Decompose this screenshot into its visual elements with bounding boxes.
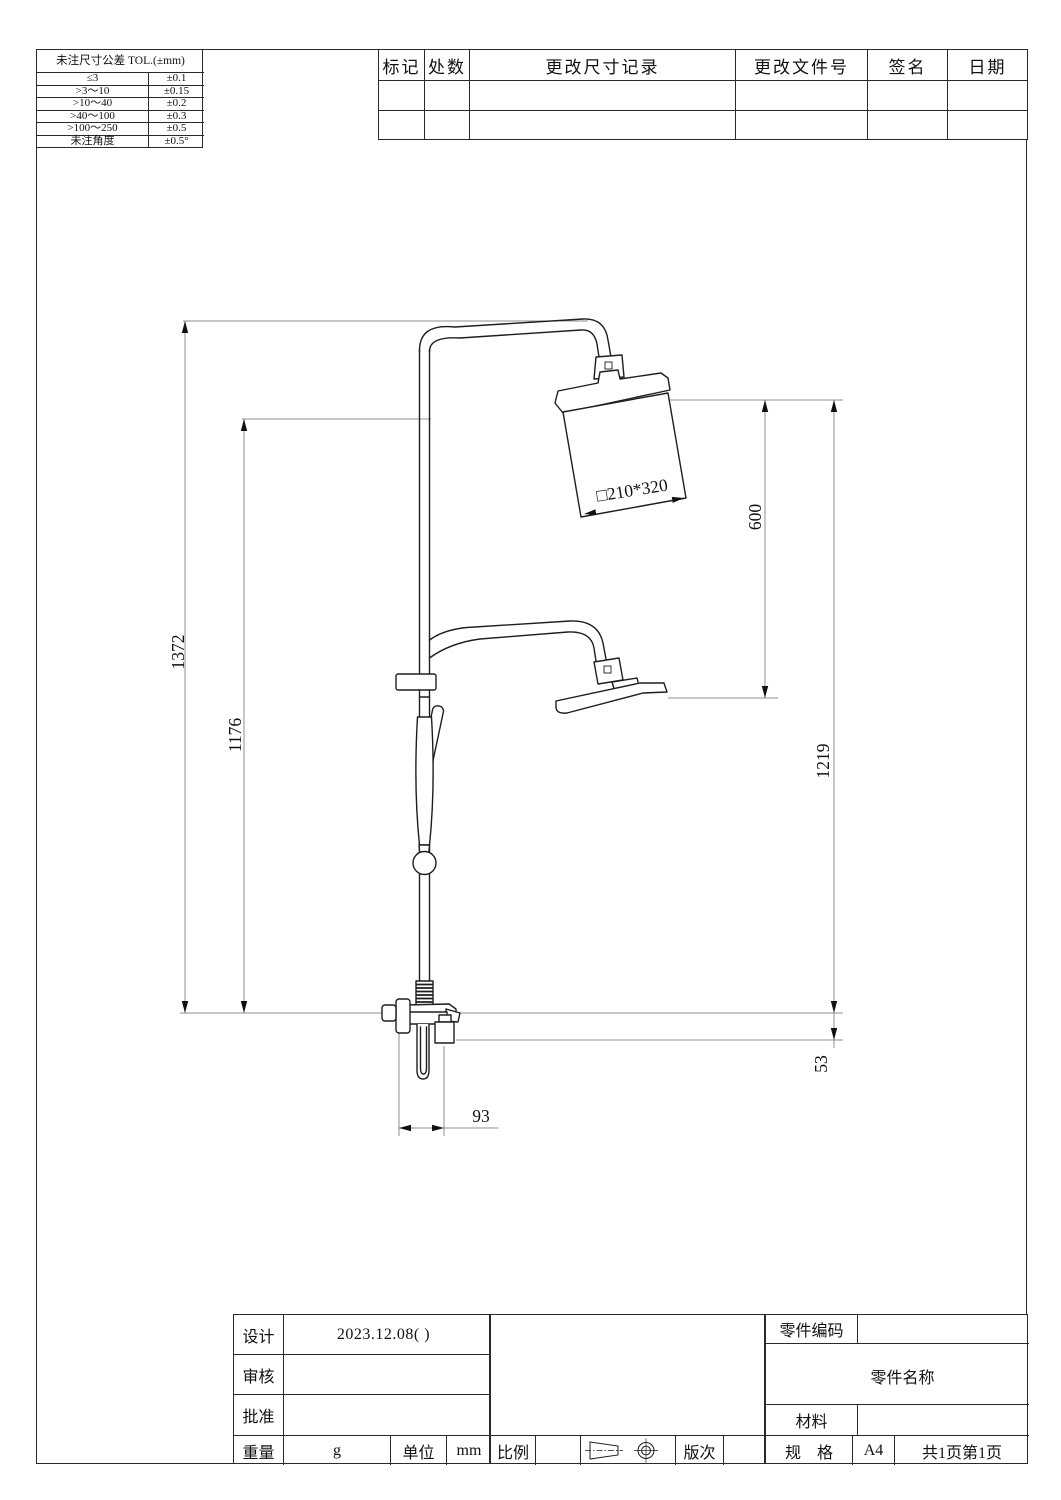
- valve-flange: [396, 999, 410, 1033]
- dimension-arrows: [182, 321, 837, 1131]
- hand-shower-wand: [416, 717, 433, 845]
- shower-column-drawing: 1372 1176 600 1219 53 93 □210*320: [0, 0, 1061, 1500]
- revision-empty-cell: [470, 81, 736, 111]
- review-value: [284, 1355, 491, 1395]
- second-arm: [430, 621, 607, 659]
- tolerance-value: ±0.3: [149, 110, 204, 123]
- tolerance-range: 未注角度: [37, 135, 149, 148]
- revision-table: 标记 处数 更改尺寸记录 更改文件号 签名 日期: [378, 49, 1028, 140]
- tolerance-table-title: 未注尺寸公差 TOL.(±mm): [37, 50, 204, 72]
- extension-lines: [180, 321, 843, 1136]
- revision-empty-cell: [868, 111, 948, 139]
- spec-label: 规 格: [766, 1436, 853, 1465]
- review-label: 审核: [234, 1355, 284, 1395]
- revision-empty-cell: [868, 81, 948, 111]
- revision-empty-cell: [425, 81, 470, 111]
- valve-outlet: [435, 1022, 454, 1043]
- revision-header-file-no: 更改文件号: [736, 50, 868, 81]
- dim-outlet-height-label: 1219: [813, 743, 833, 778]
- title-block-middle: 比例 版次: [490, 1314, 765, 1464]
- tolerance-value: ±0.5: [149, 122, 204, 135]
- first-angle-projection-icon: [582, 1437, 675, 1464]
- revision-no-value: [724, 1436, 766, 1465]
- pages-total: 共1页: [922, 1439, 962, 1463]
- tolerance-value: ±0.5°: [149, 135, 204, 148]
- part-name-label: 零件名称: [766, 1344, 1029, 1404]
- revision-empty-cell: [736, 111, 868, 139]
- revision-header-mark: 标记: [379, 50, 425, 81]
- projection-symbol: [581, 1436, 676, 1465]
- page-info: 共1页 第1页: [895, 1436, 1029, 1465]
- lower-shower-head: [556, 683, 667, 713]
- page-number: 第1页: [962, 1439, 1002, 1463]
- material-label: 材料: [766, 1405, 858, 1435]
- revision-header-count: 处数: [425, 50, 470, 81]
- scale-label: 比例: [491, 1436, 536, 1465]
- part-code-label: 零件编码: [766, 1315, 858, 1343]
- revision-header-signature: 签名: [868, 50, 948, 81]
- engineering-drawing-page: 1372 1176 600 1219 53 93 □210*320 未注尺寸公差…: [0, 0, 1061, 1500]
- revision-empty-cell: [948, 81, 1027, 111]
- weight-label: 重量: [234, 1436, 284, 1465]
- revision-no-label: 版次: [676, 1436, 724, 1465]
- spec-row: 规 格 A4 共1页 第1页: [766, 1436, 1029, 1465]
- title-block-left: 设计 2023.12.08( ) 审核 批准 重量 g 单位 mm: [233, 1314, 490, 1464]
- tolerance-table: 未注尺寸公差 TOL.(±mm) ≤3 ±0.1 >3～10 ±0.15 >10…: [36, 49, 203, 148]
- revision-header-date: 日期: [948, 50, 1027, 81]
- scale-value: [536, 1436, 581, 1465]
- revision-empty-cell: [736, 81, 868, 111]
- material-value: [858, 1405, 1029, 1435]
- part-code-value: [858, 1315, 1029, 1343]
- slider-bracket: [396, 674, 436, 690]
- tolerance-range: >10～40: [37, 97, 149, 110]
- title-block-right: 零件编码 零件名称 材料 规 格 A4 共1页 第1页: [765, 1314, 1028, 1464]
- tolerance-value: ±0.15: [149, 85, 204, 98]
- approve-label: 批准: [234, 1395, 284, 1436]
- revision-empty-cell: [470, 111, 736, 139]
- design-label: 设计: [234, 1315, 284, 1355]
- revision-empty-cell: [948, 111, 1027, 139]
- tolerance-range: >100～250: [37, 122, 149, 135]
- tolerance-value: ±0.1: [149, 72, 204, 85]
- diverter-valve: [382, 999, 460, 1079]
- shower-column: [382, 319, 686, 1079]
- spec-value: A4: [853, 1436, 895, 1465]
- drop-tube: [417, 1024, 429, 1079]
- revision-empty-cell: [379, 81, 425, 111]
- material-row: 材料: [766, 1405, 1029, 1436]
- tolerance-range: ≤3: [37, 72, 149, 85]
- design-date: 2023.12.08( ): [284, 1315, 491, 1355]
- unit-value: mm: [447, 1436, 491, 1465]
- remark-area: [491, 1315, 766, 1436]
- part-code-row: 零件编码: [766, 1315, 1029, 1344]
- riser-pipe: [420, 350, 430, 983]
- dim-head-drop-label: 600: [745, 504, 765, 531]
- approve-value: [284, 1395, 491, 1436]
- dim-upper-height-label: 1176: [225, 718, 245, 753]
- dim-total-height-label: 1372: [168, 635, 188, 670]
- tolerance-value: ±0.2: [149, 97, 204, 110]
- slider-ball: [413, 852, 436, 875]
- unit-label: 单位: [391, 1436, 447, 1465]
- dim-wall-offset-label: 93: [472, 1106, 490, 1126]
- part-name-row: 零件名称: [766, 1344, 1029, 1405]
- revision-header-record: 更改尺寸记录: [470, 50, 736, 81]
- tolerance-range: >40～100: [37, 110, 149, 123]
- tolerance-range: >3～10: [37, 85, 149, 98]
- revision-empty-cell: [425, 111, 470, 139]
- weight-value: g: [284, 1436, 391, 1465]
- valve-knob: [382, 1005, 396, 1021]
- dim-spout-offset-label: 53: [811, 1055, 831, 1073]
- revision-empty-cell: [379, 111, 425, 139]
